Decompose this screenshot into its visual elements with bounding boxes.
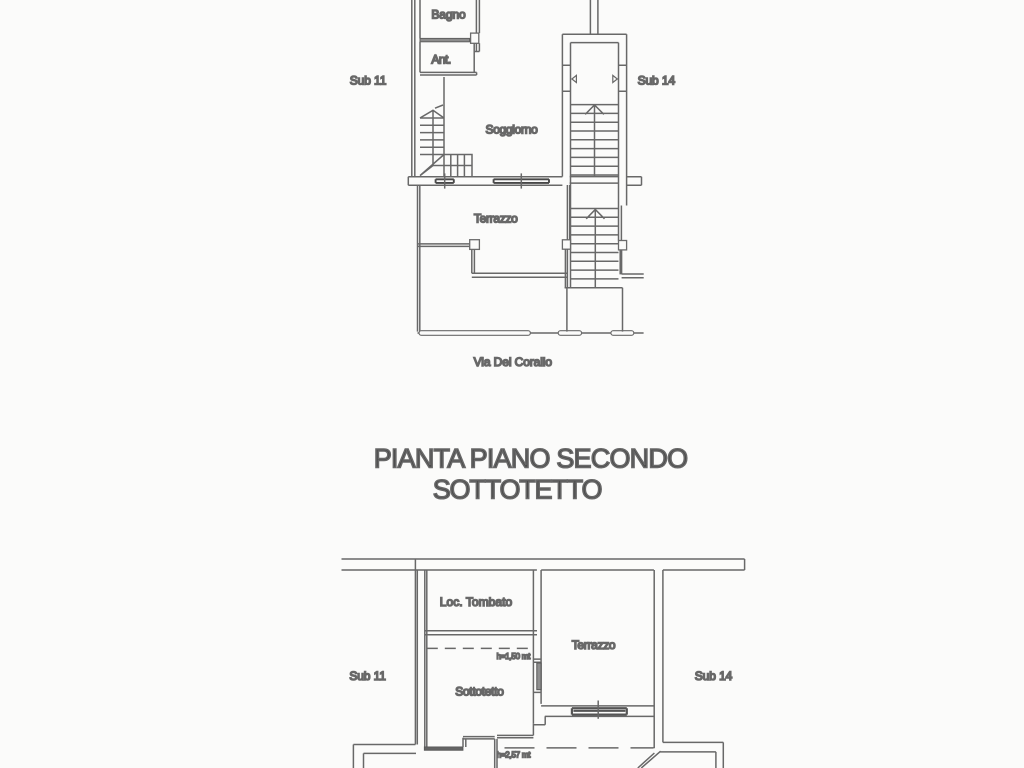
svg-text:Sub 14: Sub 14	[638, 74, 676, 88]
svg-text:Ant.: Ant.	[431, 52, 451, 66]
svg-text:Terrazzo: Terrazzo	[474, 211, 518, 225]
svg-text:Bagno: Bagno	[431, 8, 466, 22]
svg-text:h=1,50 mt: h=1,50 mt	[497, 652, 532, 661]
svg-text:Soggiorno: Soggiorno	[485, 122, 538, 136]
svg-text:SOTTOTETTO: SOTTOTETTO	[433, 474, 602, 504]
svg-text:PIANTA PIANO SECONDO: PIANTA PIANO SECONDO	[374, 444, 688, 474]
svg-text:Loc. Tombato: Loc. Tombato	[440, 595, 513, 609]
svg-text:h=2,57 mt: h=2,57 mt	[497, 751, 532, 760]
svg-text:Sub 11: Sub 11	[349, 669, 386, 683]
svg-text:Sottotetto: Sottotetto	[455, 685, 504, 699]
svg-text:Sub 14: Sub 14	[695, 669, 733, 683]
svg-text:Sub 11: Sub 11	[350, 74, 387, 88]
svg-text:Via Del Corallo: Via Del Corallo	[474, 355, 553, 369]
svg-text:Terrazzo: Terrazzo	[572, 638, 616, 652]
